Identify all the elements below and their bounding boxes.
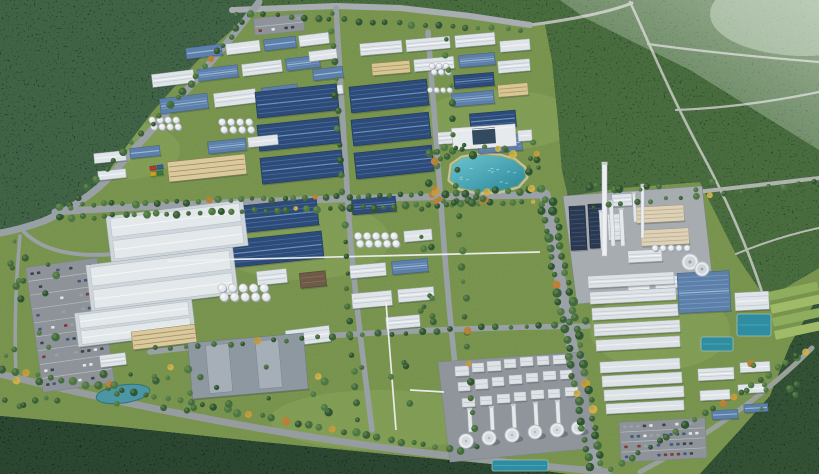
parked-car bbox=[625, 455, 629, 458]
parked-car bbox=[650, 434, 654, 437]
unit-building bbox=[504, 359, 518, 370]
bluelt-building bbox=[677, 271, 732, 315]
parked-car bbox=[69, 267, 73, 270]
parked-car bbox=[695, 432, 699, 435]
grayflat-building bbox=[188, 333, 310, 400]
white-building bbox=[404, 229, 434, 244]
central-lake bbox=[450, 155, 526, 192]
parked-car bbox=[44, 369, 48, 372]
parked-car bbox=[670, 453, 674, 456]
parked-car bbox=[682, 432, 686, 435]
parked-car bbox=[656, 434, 660, 437]
smoke-stack bbox=[641, 184, 645, 238]
parked-car bbox=[46, 383, 50, 386]
parked-car bbox=[40, 341, 44, 344]
white-building bbox=[735, 291, 771, 312]
parked-car bbox=[675, 423, 679, 426]
parked-car bbox=[669, 433, 673, 436]
parked-car bbox=[81, 350, 85, 353]
parked-car bbox=[683, 442, 687, 445]
parked-car bbox=[84, 279, 88, 282]
parked-car bbox=[36, 314, 40, 317]
parked-car bbox=[664, 453, 668, 456]
parked-car bbox=[271, 28, 275, 31]
parked-car bbox=[100, 347, 104, 350]
parked-car bbox=[644, 444, 648, 447]
parked-car bbox=[30, 272, 34, 275]
parked-car bbox=[83, 364, 87, 367]
parked-car bbox=[689, 442, 693, 445]
parked-car bbox=[643, 424, 647, 427]
brown-building bbox=[299, 271, 328, 290]
white-building bbox=[740, 361, 772, 374]
water-treatment-pool bbox=[701, 337, 733, 351]
parked-car bbox=[52, 382, 56, 385]
parked-car bbox=[74, 351, 78, 354]
parked-car bbox=[677, 453, 681, 456]
white-building bbox=[498, 59, 532, 75]
gray-flat-warehouse bbox=[188, 333, 310, 400]
tan-building bbox=[498, 83, 530, 99]
solar-building bbox=[569, 206, 588, 252]
unit-building bbox=[472, 363, 486, 374]
water-treatment-pool bbox=[492, 460, 548, 471]
unit-building bbox=[520, 357, 535, 368]
parked-car bbox=[662, 423, 666, 426]
parked-car bbox=[637, 445, 641, 448]
cooling-tower bbox=[695, 262, 709, 276]
unit-building bbox=[475, 379, 490, 391]
parked-car bbox=[81, 307, 85, 310]
parked-car bbox=[636, 425, 640, 428]
white-building bbox=[612, 193, 634, 208]
parked-car bbox=[42, 355, 46, 358]
parked-car bbox=[657, 454, 661, 457]
parked-car bbox=[51, 326, 55, 329]
parked-car bbox=[683, 452, 687, 455]
parked-car bbox=[79, 294, 83, 297]
white-building bbox=[700, 389, 732, 402]
unit-building bbox=[509, 375, 524, 386]
parked-car bbox=[64, 324, 68, 327]
unit-building bbox=[514, 392, 528, 403]
unit-building bbox=[537, 356, 551, 367]
parked-car bbox=[94, 348, 98, 351]
parked-car bbox=[56, 269, 60, 272]
parked-car bbox=[72, 337, 76, 340]
parked-car bbox=[62, 310, 66, 313]
white-building bbox=[256, 268, 288, 287]
parked-car bbox=[676, 443, 680, 446]
parked-car bbox=[38, 328, 42, 331]
parked-car bbox=[657, 444, 661, 447]
parked-car bbox=[690, 452, 694, 455]
beige-building bbox=[641, 228, 691, 248]
parked-car bbox=[649, 424, 653, 427]
parked-car bbox=[624, 445, 628, 448]
parked-car bbox=[66, 338, 70, 341]
industrial-park-aerial-render bbox=[0, 0, 819, 474]
parked-car bbox=[70, 323, 74, 326]
unit-building bbox=[543, 371, 558, 382]
unit-building bbox=[531, 390, 546, 401]
parked-car bbox=[689, 432, 693, 435]
parked-car bbox=[623, 425, 627, 428]
parked-car bbox=[643, 434, 647, 437]
parked-car bbox=[637, 435, 641, 438]
unit-building bbox=[548, 389, 562, 400]
unit-building bbox=[480, 396, 494, 407]
aerial-scene-canvas bbox=[0, 0, 819, 474]
parked-car bbox=[55, 354, 59, 357]
parked-car bbox=[50, 368, 54, 371]
unit-building bbox=[526, 373, 540, 384]
parked-car bbox=[39, 285, 43, 288]
bluelt-building bbox=[712, 409, 740, 421]
parked-car bbox=[291, 26, 295, 29]
silo-cluster bbox=[354, 232, 400, 248]
bluelt-building bbox=[744, 403, 769, 414]
parked-car bbox=[78, 379, 82, 382]
parked-car bbox=[91, 377, 95, 380]
smoke-stack bbox=[602, 162, 608, 256]
unit-building bbox=[497, 394, 512, 405]
parked-car bbox=[87, 349, 91, 352]
parked-car bbox=[630, 425, 634, 428]
container-yard bbox=[150, 165, 165, 178]
unit-building bbox=[487, 361, 503, 373]
parked-car bbox=[77, 280, 81, 283]
water-treatment-pool bbox=[737, 314, 771, 336]
parked-car bbox=[630, 435, 634, 438]
parked-car bbox=[284, 26, 288, 29]
parked-car bbox=[37, 271, 41, 274]
parked-car bbox=[670, 443, 674, 446]
unit-building bbox=[492, 377, 506, 388]
parked-car bbox=[60, 296, 64, 299]
parked-car bbox=[258, 29, 262, 32]
unit-building bbox=[455, 366, 471, 378]
parked-car bbox=[89, 363, 93, 366]
parked-car bbox=[296, 17, 300, 20]
white-building bbox=[698, 367, 736, 382]
